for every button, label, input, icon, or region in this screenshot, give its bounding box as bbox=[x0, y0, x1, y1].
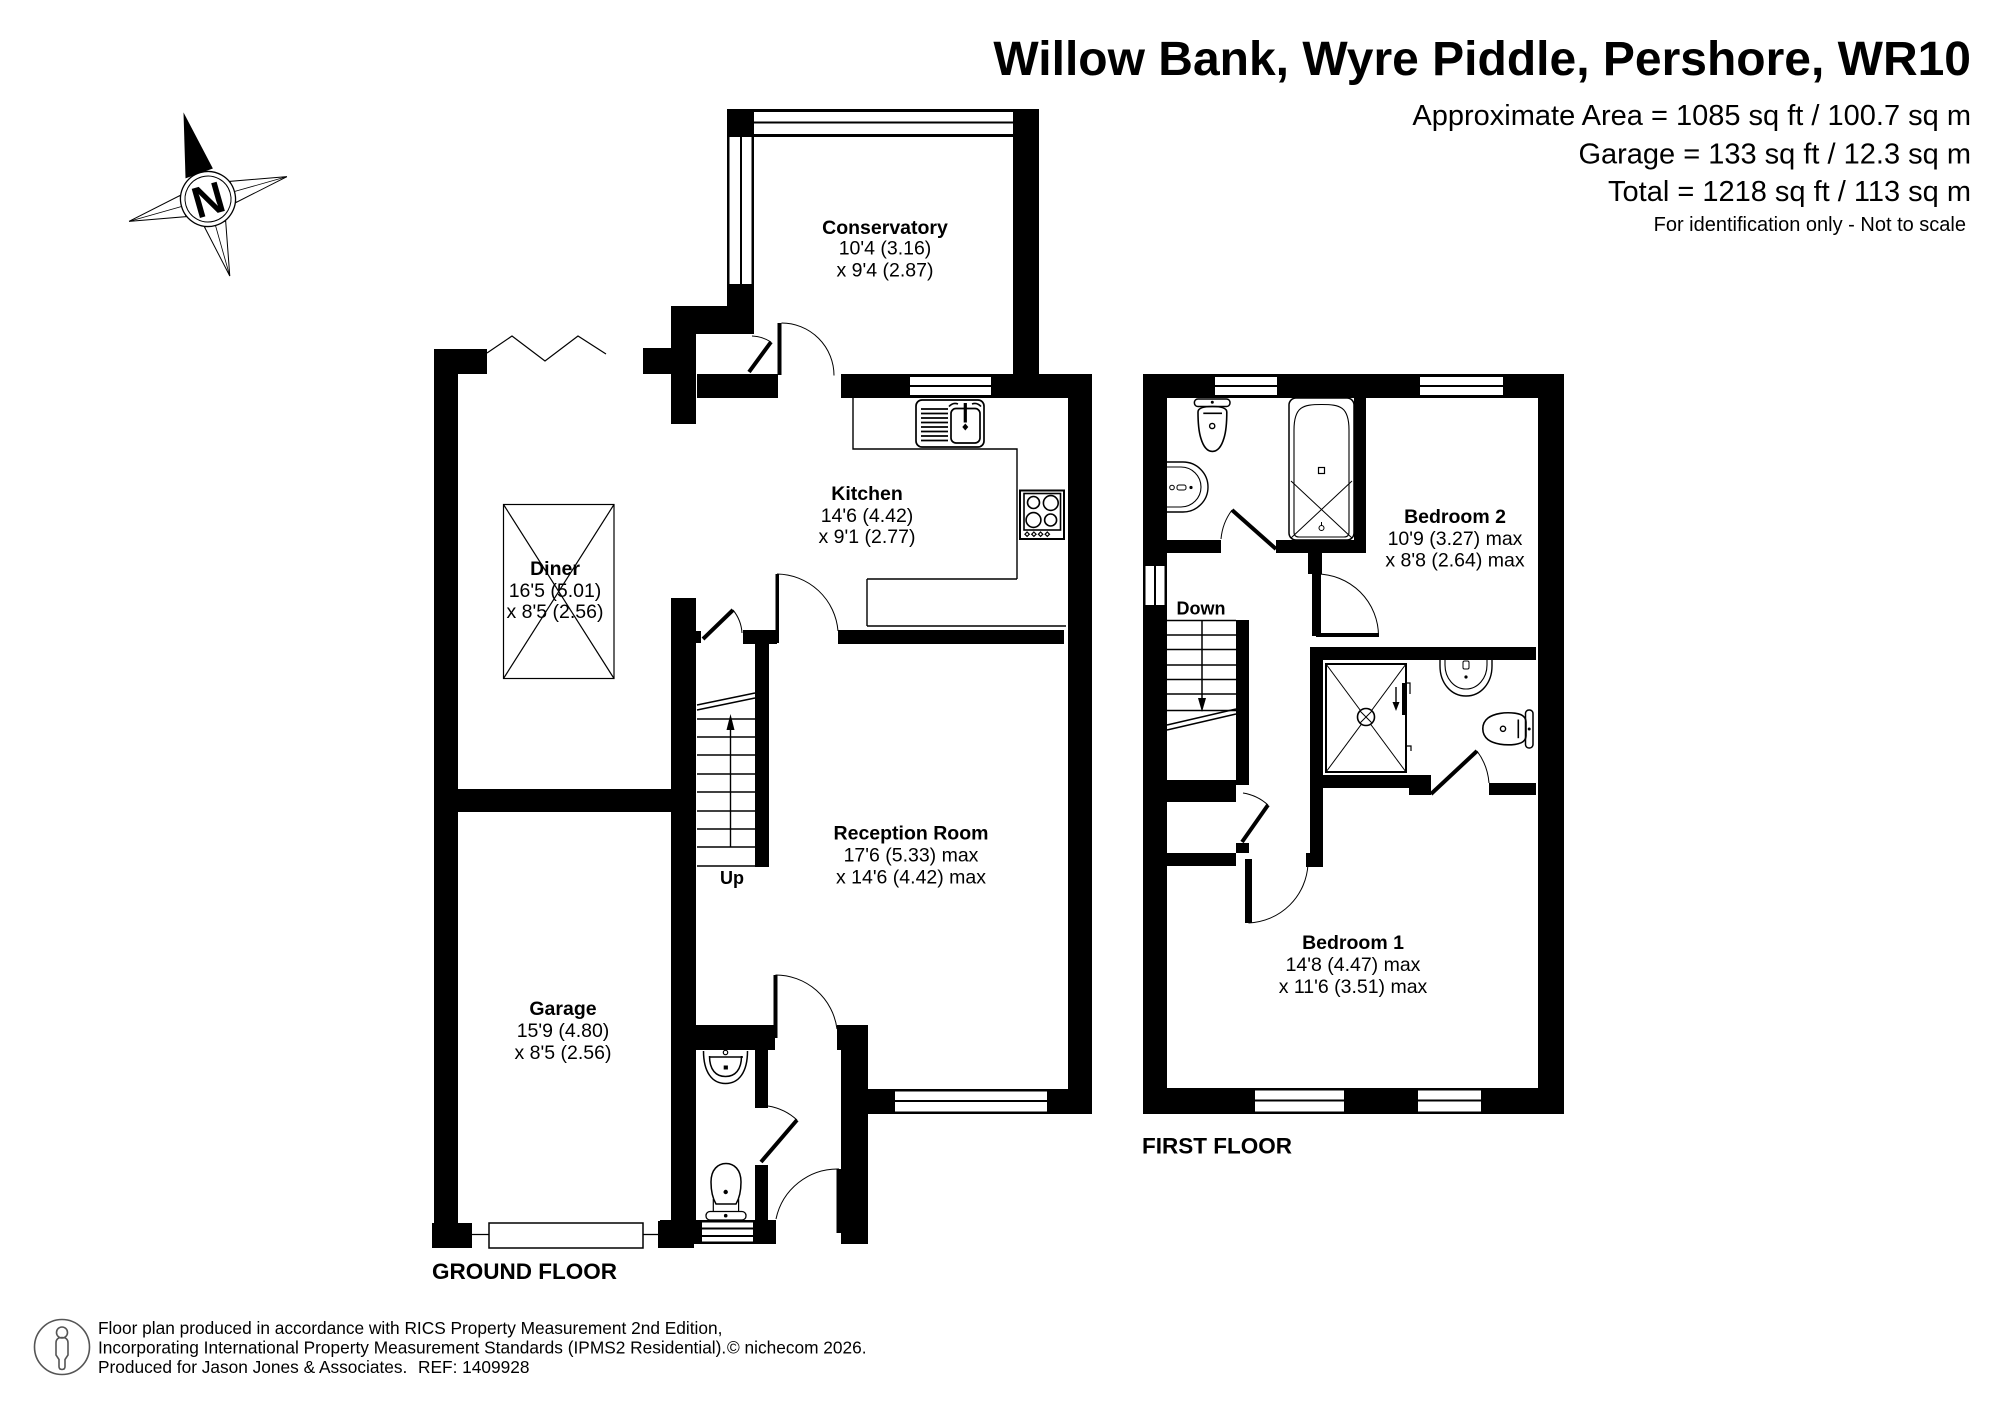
svg-text:15'9 (4.80): 15'9 (4.80) bbox=[517, 1020, 610, 1042]
svg-text:10'9 (3.27) max: 10'9 (3.27) max bbox=[1388, 528, 1523, 550]
svg-text:Down: Down bbox=[1177, 599, 1226, 619]
svg-text:14'8 (4.47) max: 14'8 (4.47) max bbox=[1286, 954, 1421, 976]
svg-text:Diner: Diner bbox=[530, 558, 580, 580]
svg-text:10'4 (3.16): 10'4 (3.16) bbox=[839, 238, 932, 260]
svg-text:Incorporating International Pr: Incorporating International Property Mea… bbox=[98, 1338, 726, 1358]
svg-text:Kitchen: Kitchen bbox=[831, 483, 903, 505]
svg-text:GROUND FLOOR: GROUND FLOOR bbox=[432, 1259, 617, 1284]
svg-text:Bedroom 2: Bedroom 2 bbox=[1404, 506, 1506, 528]
svg-text:Reception Room: Reception Room bbox=[834, 823, 989, 845]
svg-text:REF: 1409928: REF: 1409928 bbox=[418, 1357, 529, 1377]
svg-text:14'6 (4.42): 14'6 (4.42) bbox=[821, 505, 914, 527]
svg-text:16'5 (5.01): 16'5 (5.01) bbox=[509, 580, 602, 602]
svg-text:Willow Bank, Wyre Piddle, Pers: Willow Bank, Wyre Piddle, Pershore, WR10 bbox=[993, 33, 1971, 86]
svg-text:FIRST FLOOR: FIRST FLOOR bbox=[1142, 1134, 1292, 1159]
svg-text:Garage = 133 sq ft / 12.3 sq m: Garage = 133 sq ft / 12.3 sq m bbox=[1578, 139, 1971, 171]
svg-text:Approximate Area = 1085 sq ft: Approximate Area = 1085 sq ft / 100.7 sq… bbox=[1412, 100, 1971, 132]
svg-text:x 8'8 (2.64) max: x 8'8 (2.64) max bbox=[1385, 550, 1524, 572]
svg-text:Produced for Jason Jones & Ass: Produced for Jason Jones & Associates. bbox=[98, 1357, 407, 1377]
svg-text:x 9'1 (2.77): x 9'1 (2.77) bbox=[819, 526, 916, 548]
svg-text:For identification only - Not: For identification only - Not to scale bbox=[1654, 214, 1966, 236]
svg-text:Up: Up bbox=[720, 868, 744, 888]
svg-text:Bedroom 1: Bedroom 1 bbox=[1302, 932, 1404, 954]
svg-text:x 9'4 (2.87): x 9'4 (2.87) bbox=[837, 260, 934, 282]
svg-text:Conservatory: Conservatory bbox=[822, 217, 948, 239]
svg-text:Garage: Garage bbox=[529, 998, 596, 1020]
svg-text:x 8'5 (2.56): x 8'5 (2.56) bbox=[515, 1042, 612, 1064]
svg-text:© nichecom 2026.: © nichecom 2026. bbox=[727, 1338, 867, 1358]
svg-text:x 11'6 (3.51) max: x 11'6 (3.51) max bbox=[1279, 976, 1428, 998]
svg-text:x 8'5 (2.56): x 8'5 (2.56) bbox=[507, 601, 604, 623]
svg-text:x 14'6 (4.42) max: x 14'6 (4.42) max bbox=[836, 867, 986, 889]
svg-text:Floor plan produced in accorda: Floor plan produced in accordance with R… bbox=[98, 1318, 722, 1338]
svg-text:Total = 1218 sq ft / 113 sq m: Total = 1218 sq ft / 113 sq m bbox=[1608, 176, 1971, 208]
svg-text:17'6 (5.33) max: 17'6 (5.33) max bbox=[844, 845, 979, 867]
